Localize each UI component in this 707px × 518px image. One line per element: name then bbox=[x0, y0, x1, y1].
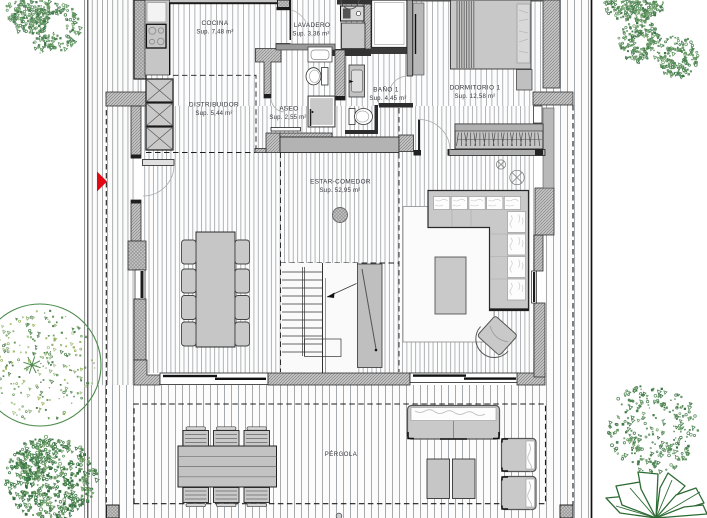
svg-text:LAVADERO: LAVADERO bbox=[294, 22, 331, 29]
svg-text:Sup. 7,48 m²: Sup. 7,48 m² bbox=[196, 30, 233, 36]
svg-text:PÉRGOLA: PÉRGOLA bbox=[325, 451, 358, 458]
svg-text:DISTRIBUIDOR: DISTRIBUIDOR bbox=[189, 102, 239, 109]
svg-text:Sup. 3,36 m²: Sup. 3,36 m² bbox=[292, 32, 329, 38]
svg-text:ESTAR-COMEDOR: ESTAR-COMEDOR bbox=[310, 179, 371, 186]
svg-text:COCINA: COCINA bbox=[202, 20, 229, 27]
svg-text:Sup. 5,44 m²: Sup. 5,44 m² bbox=[195, 111, 232, 117]
svg-text:Sup. 52,95 m²: Sup. 52,95 m² bbox=[320, 188, 361, 194]
svg-text:BAÑO 1: BAÑO 1 bbox=[373, 85, 399, 94]
svg-text:Sup. 12,58 m²: Sup. 12,58 m² bbox=[455, 94, 496, 100]
svg-text:Sup. 2,55 m²: Sup. 2,55 m² bbox=[269, 115, 306, 121]
svg-text:DORMITORIO 1: DORMITORIO 1 bbox=[450, 85, 501, 92]
svg-text:Sup. 4,45 m²: Sup. 4,45 m² bbox=[369, 96, 406, 102]
svg-text:ASEO: ASEO bbox=[279, 106, 298, 113]
